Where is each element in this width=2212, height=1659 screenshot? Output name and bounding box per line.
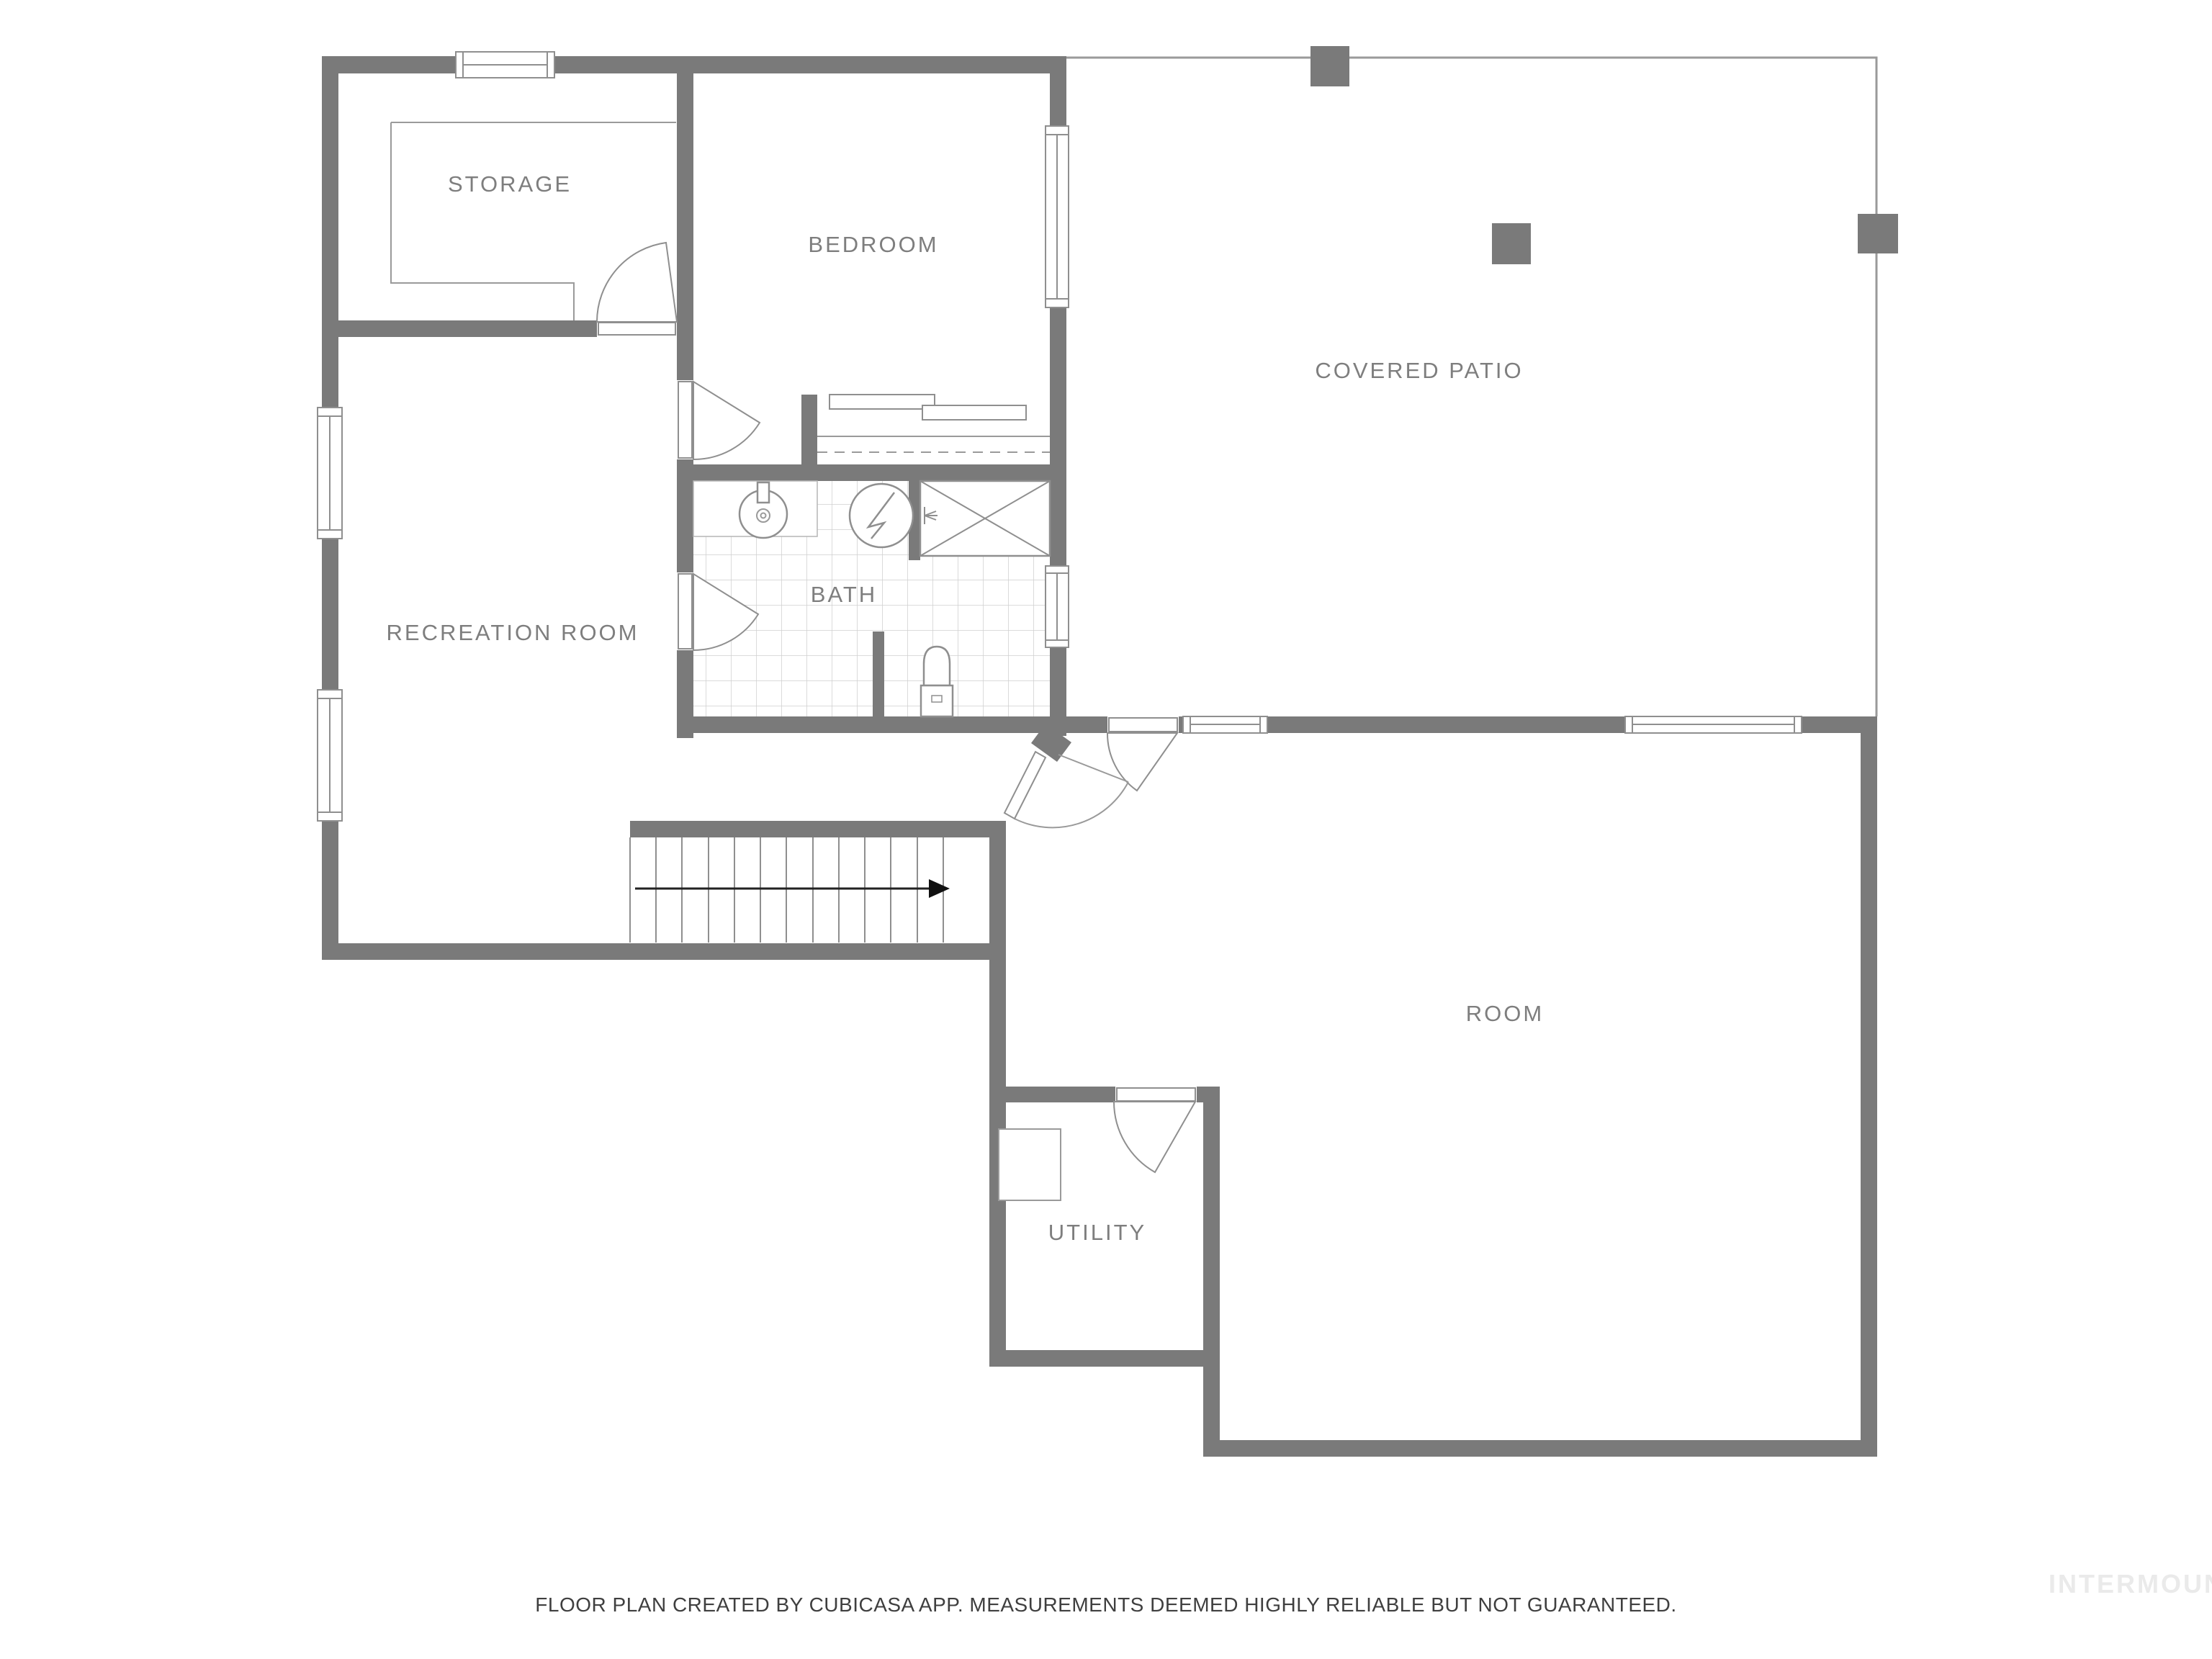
window-recreation-upper [318,408,342,539]
closet-slider-panel-2 [922,405,1026,420]
door-storage [597,243,677,337]
wall-stairs-top [630,821,1006,837]
window-room-top-left [1183,716,1267,733]
door-landing-diagonal [1004,752,1128,827]
window-room-top-right [1625,716,1802,733]
stairs [630,837,950,943]
wall-bottom-left [322,943,1006,960]
wall-bath-top [677,464,1066,481]
walls [322,56,1877,1457]
label-bedroom: BEDROOM [808,232,938,257]
label-room: ROOM [1466,1001,1544,1026]
wall-room-right [1861,716,1877,1457]
label-covered-patio: COVERED PATIO [1315,358,1523,383]
door-room-patio [1107,716,1179,791]
stair-treads [630,837,943,943]
watermark-logo: INTERMOUNTAIN [2049,1569,2212,1599]
wall-closet-stub [801,395,817,464]
bedroom-closet [817,395,1050,452]
window-storage-top [456,52,554,78]
wall-room-bottom [1203,1440,1877,1457]
utility-water-heater [999,1129,1061,1200]
label-recreation-room: RECREATION ROOM [387,620,639,645]
label-storage: STORAGE [448,171,572,197]
floor-plan-page: STORAGE BEDROOM COVERED PATIO RECREATION… [0,0,2212,1659]
window-bedroom-right [1046,126,1069,307]
wall-top [322,56,1066,73]
wall-utility-left [989,821,1006,1367]
door-bedroom [677,380,760,459]
toilet [921,647,953,716]
footer-disclaimer: FLOOR PLAN CREATED BY CUBICASA APP. MEAS… [535,1593,1676,1616]
label-bath: BATH [811,582,877,607]
water-heater [850,484,913,547]
window-bath-right [1046,566,1069,647]
window-recreation-lower [318,690,342,821]
patio-post-right [1858,214,1898,253]
wall-utility-bottom [989,1350,1220,1367]
closet-slider-panel-1 [829,395,935,409]
label-utility: UTILITY [1048,1220,1146,1245]
wall-toilet-stub [873,631,884,716]
door-utility [1114,1087,1197,1172]
patio-outline [1066,58,1876,716]
floor-plan-drawing: STORAGE BEDROOM COVERED PATIO RECREATION… [0,0,2212,1659]
patio-post-middle [1492,223,1531,264]
wall-utility-right [1203,1087,1220,1457]
shower [920,481,1050,556]
patio-post-top [1310,46,1349,86]
